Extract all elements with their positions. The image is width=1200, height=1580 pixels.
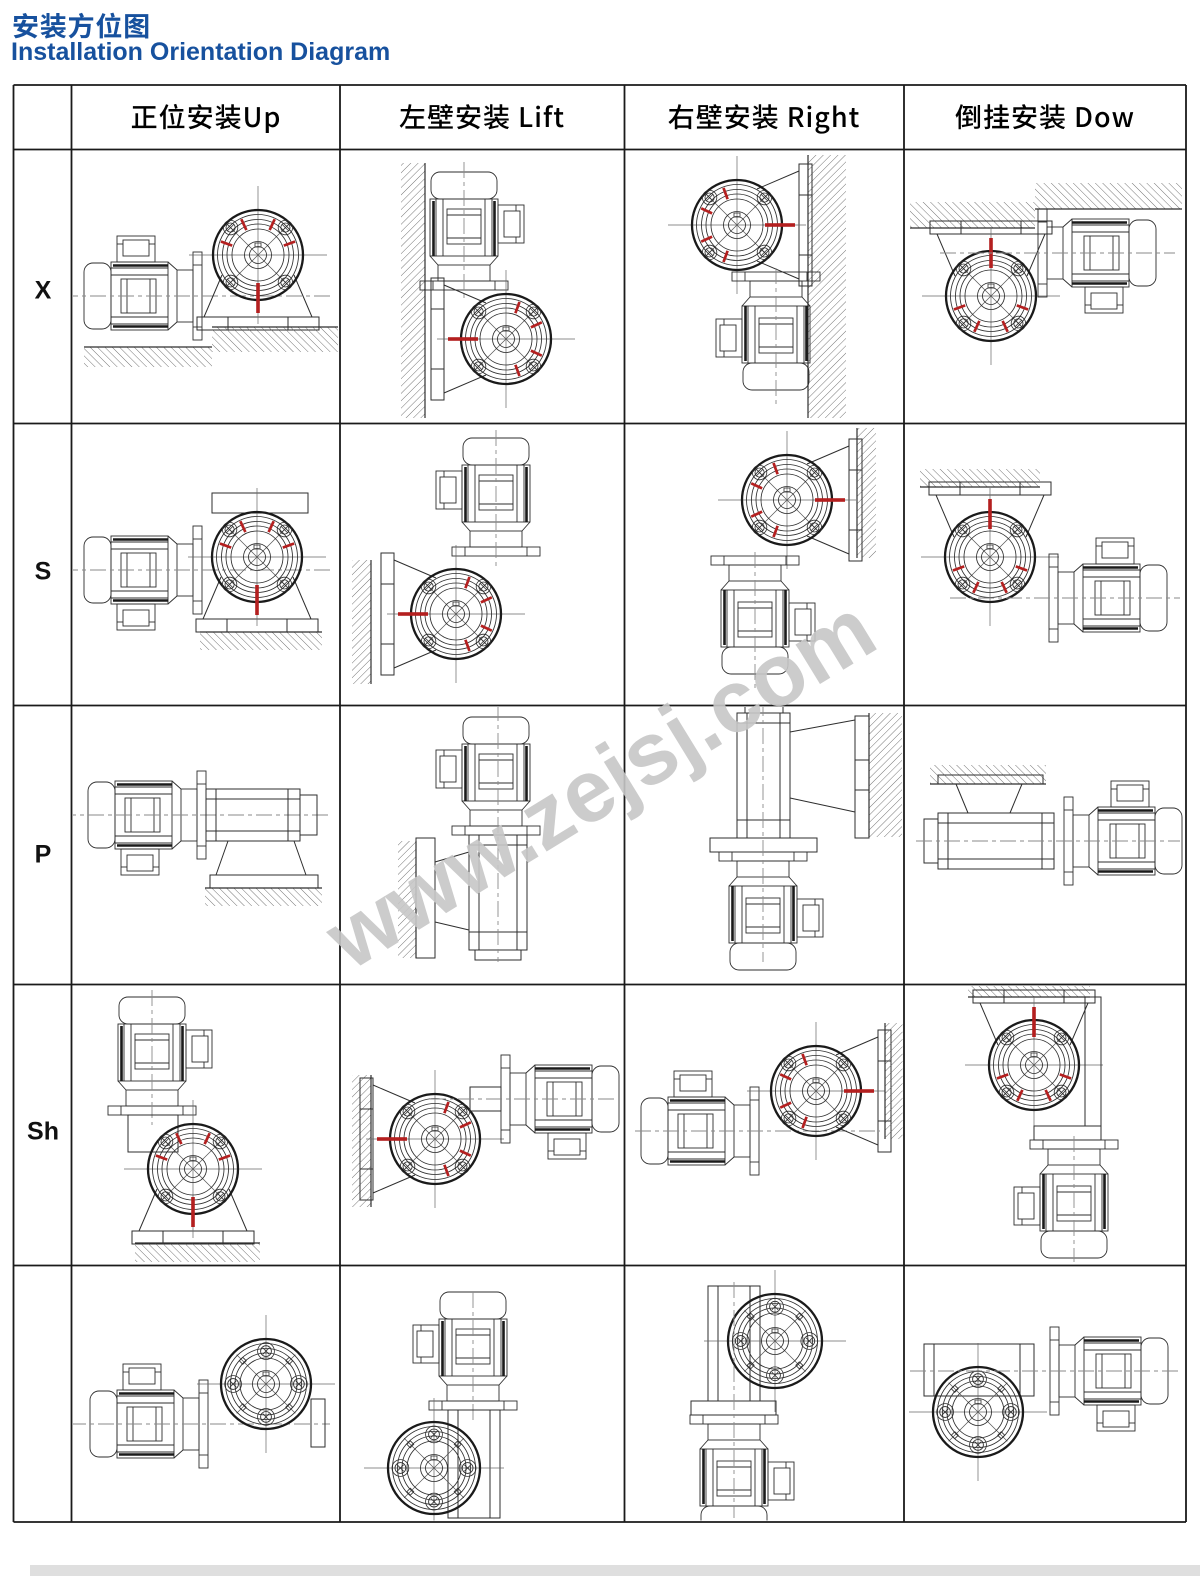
svg-text:www.zejsj.com: www.zejsj.com: [308, 578, 892, 988]
